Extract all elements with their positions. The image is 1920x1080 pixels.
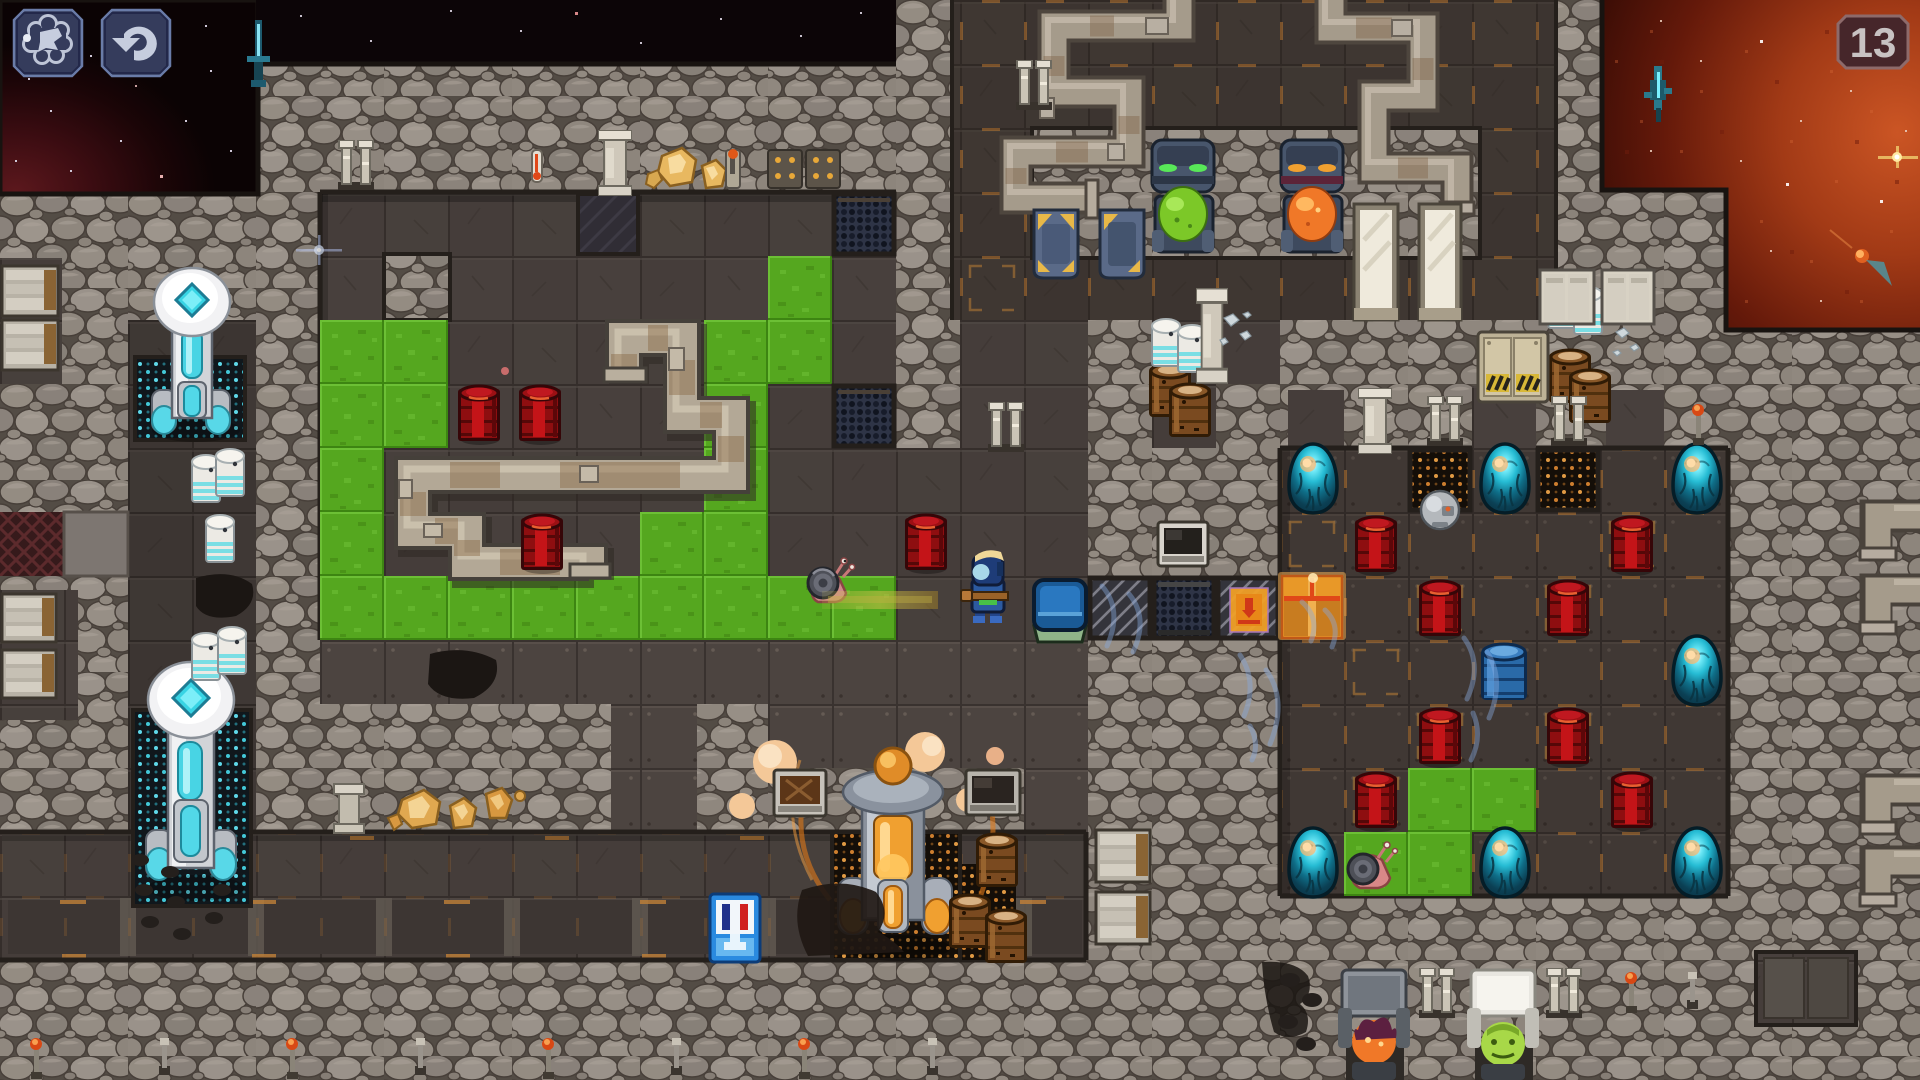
- svg-text:13: 13: [1850, 19, 1897, 66]
